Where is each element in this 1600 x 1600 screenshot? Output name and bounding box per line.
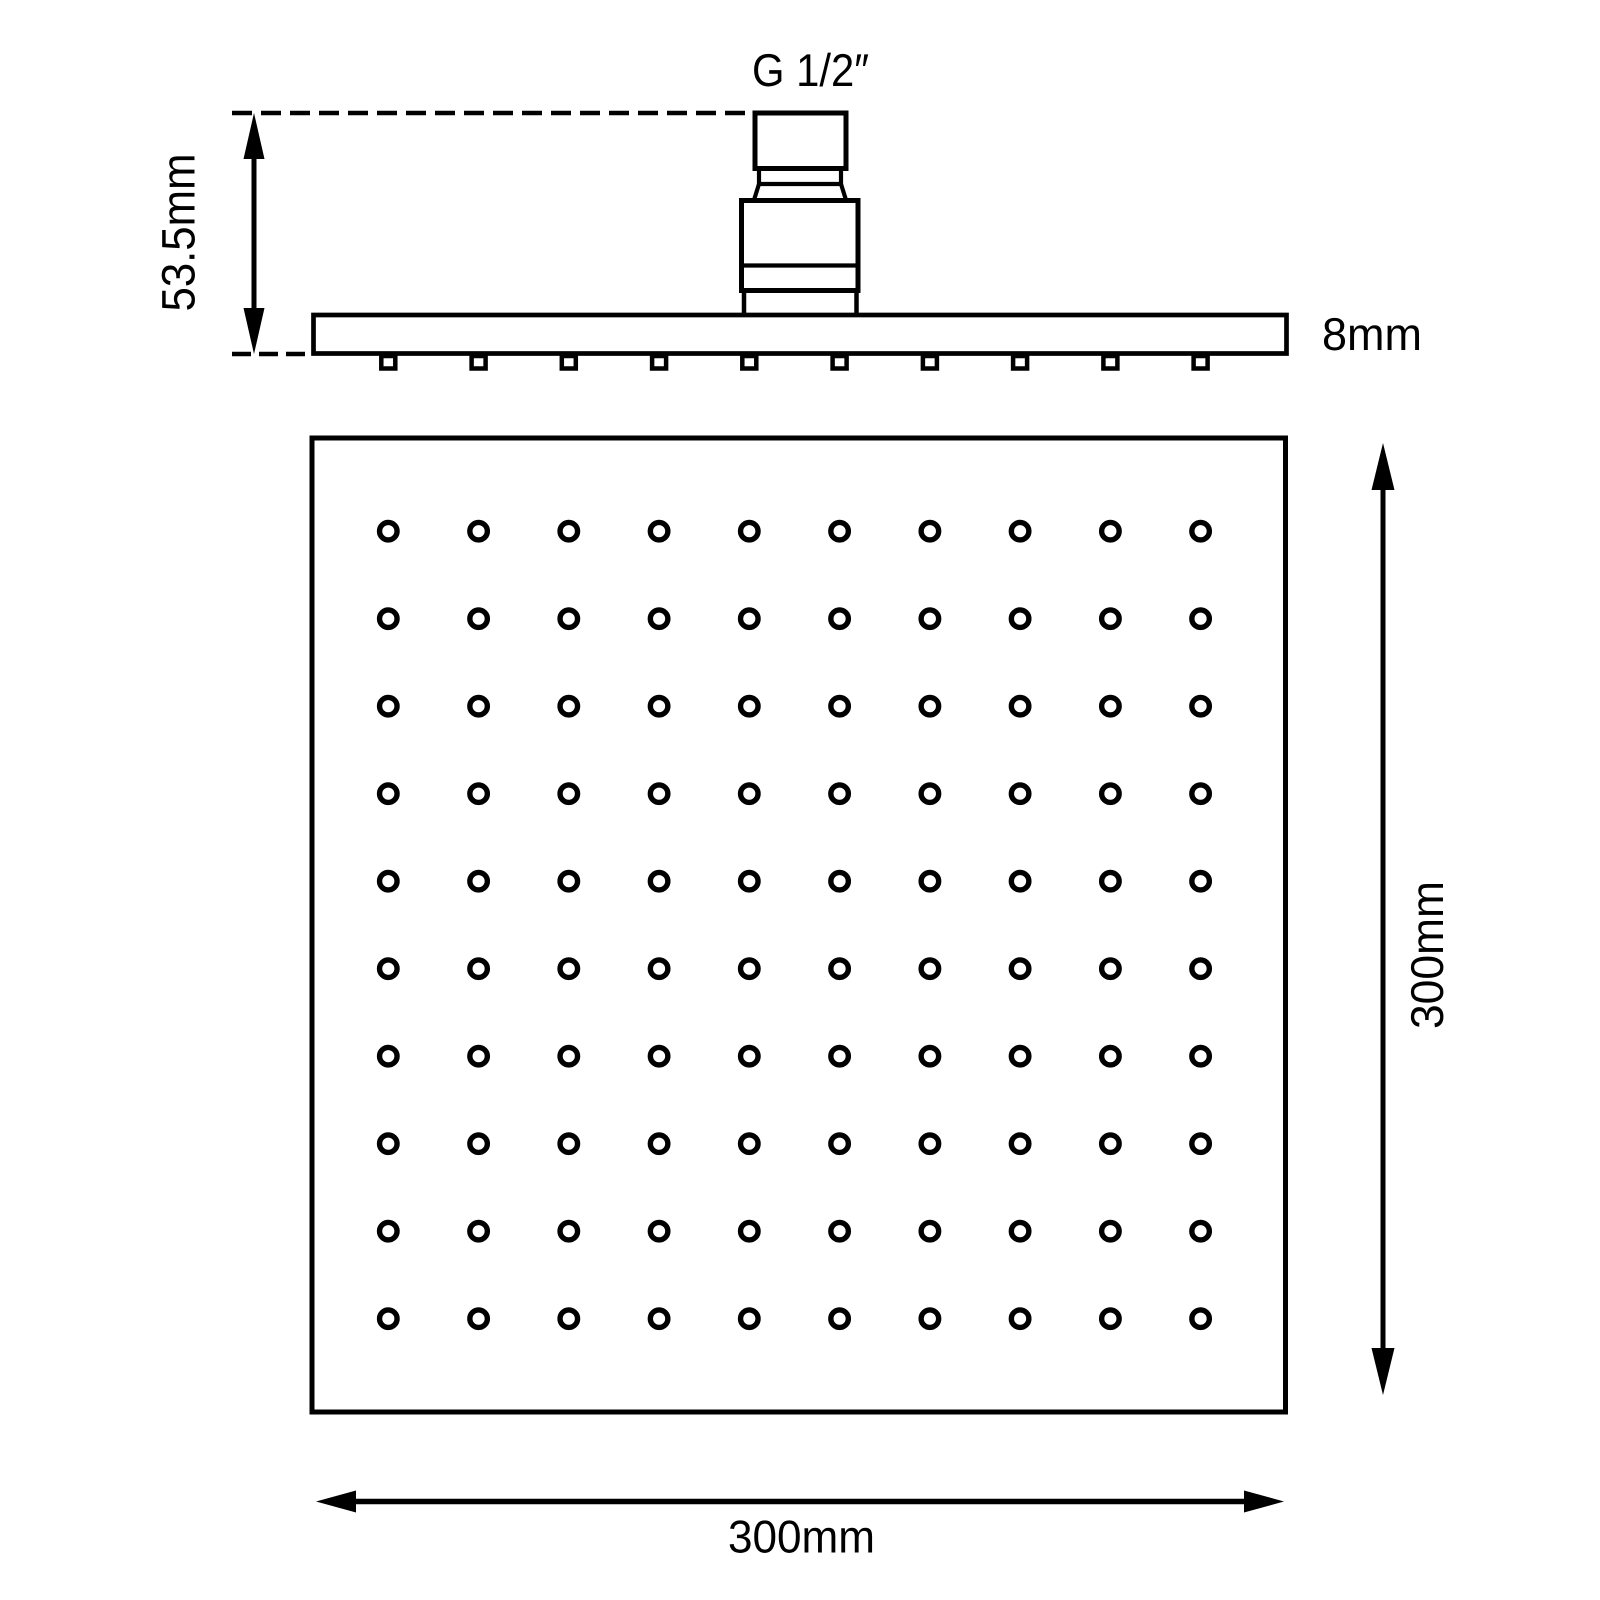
- svg-text:8mm: 8mm: [1322, 308, 1422, 360]
- svg-text:300mm: 300mm: [1401, 881, 1453, 1029]
- svg-text:300mm: 300mm: [728, 1511, 875, 1563]
- svg-text:G 1/2″: G 1/2″: [752, 44, 869, 96]
- svg-text:53.5mm: 53.5mm: [152, 154, 205, 312]
